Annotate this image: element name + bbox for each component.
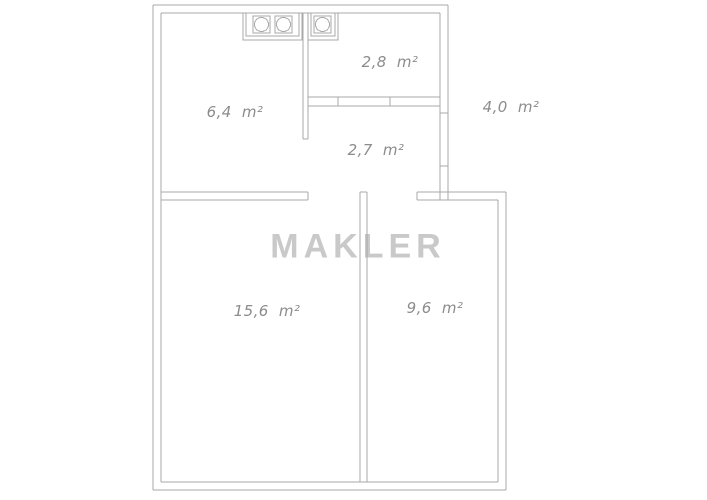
room-label-room-small: 9,6 m² xyxy=(407,299,464,317)
room-divider-wall xyxy=(360,192,367,482)
burner-icon xyxy=(314,16,331,33)
upper-right-wall-window xyxy=(440,5,448,200)
burner-icon xyxy=(275,16,292,33)
mid-wall-right-segment xyxy=(417,192,506,200)
room-label-hallway: 2,7 m² xyxy=(348,141,405,159)
outer-walls xyxy=(153,5,506,490)
room-label-bathroom: 2,8 m² xyxy=(362,53,419,71)
kitchen-unit-left xyxy=(243,13,302,40)
room-label-balcony: 4,0 m² xyxy=(483,98,540,116)
floor-plan-drawing xyxy=(0,0,707,500)
bathroom-wall-window xyxy=(308,97,440,106)
room-label-kitchen: 6,4 m² xyxy=(207,103,264,121)
room-label-room-large: 15,6 m² xyxy=(234,302,301,320)
mid-wall-left-segment xyxy=(161,192,308,200)
floor-plan: MAKLER xyxy=(0,0,707,500)
kitchen-unit-right xyxy=(308,13,338,40)
kitchen-partition-wall xyxy=(303,13,308,139)
burner-icon xyxy=(253,16,270,33)
